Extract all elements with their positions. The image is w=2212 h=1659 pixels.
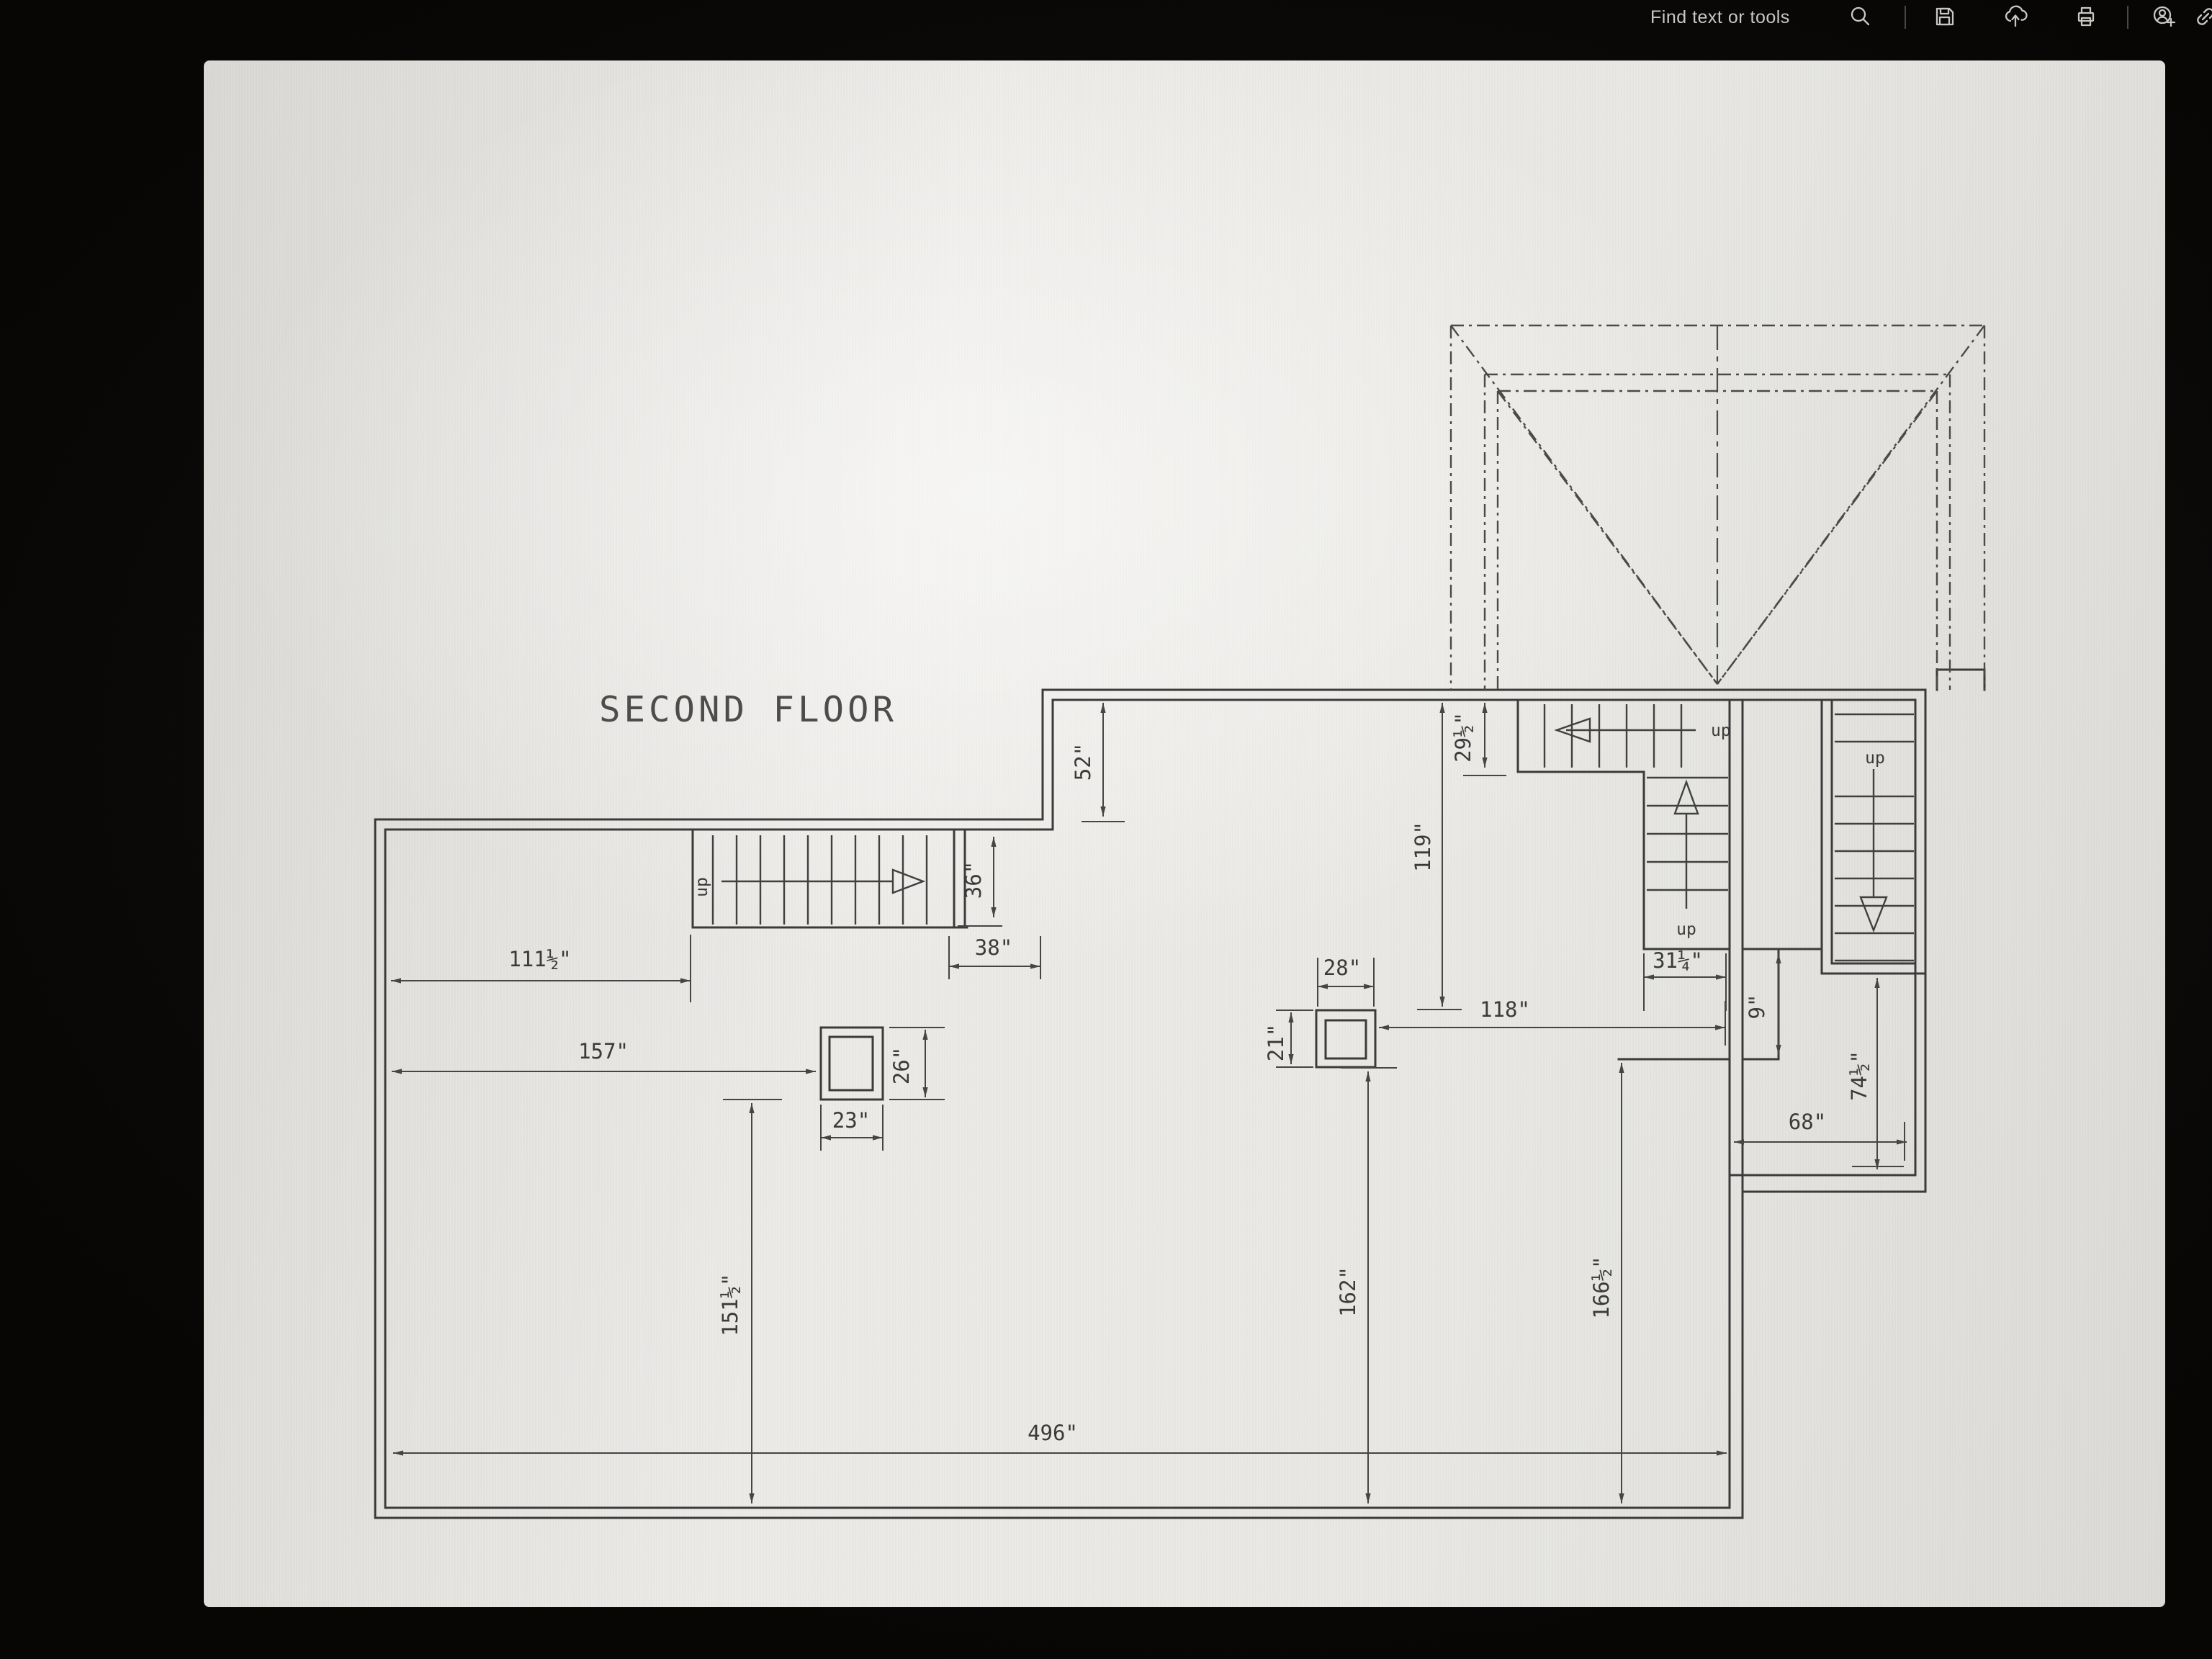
- dim-label-162: 162": [1336, 1267, 1360, 1317]
- staircase-left: up: [693, 835, 927, 925]
- roof-outline: [1451, 325, 1984, 690]
- screen: { "toolbar": { "find_label": "Find text …: [0, 0, 2212, 1659]
- dim-label-74: 74½": [1847, 1051, 1871, 1101]
- staircase-right: up: [1835, 714, 1914, 961]
- chimney-left: [821, 1028, 883, 1100]
- dim-label-26: 26": [889, 1047, 914, 1084]
- dim-label-118: 118": [1480, 997, 1530, 1022]
- dim-label-68: 68": [1789, 1110, 1826, 1134]
- dim-label-36: 36": [961, 861, 986, 899]
- stair-up-label: up: [1865, 749, 1885, 768]
- dim-label-119: 119": [1411, 822, 1435, 872]
- dim-label-28: 28": [1323, 956, 1361, 980]
- dim-label-21: 21": [1264, 1024, 1288, 1061]
- stair-up-label: up: [1711, 721, 1731, 740]
- dim-label-496: 496": [1028, 1421, 1078, 1445]
- staircase-middle-lower-run: up: [1647, 778, 1728, 939]
- dim-label-9: 9": [1745, 994, 1769, 1020]
- dim-label-31: 31¼": [1653, 948, 1703, 973]
- floor-plan-drawing: up up up up: [0, 0, 2212, 1659]
- dim-label-29: 29½": [1451, 712, 1475, 763]
- staircase-middle-upper-run: up: [1545, 704, 1731, 768]
- dim-label-166: 166½": [1589, 1256, 1614, 1318]
- stair-up-label: up: [693, 877, 711, 897]
- dimension-labels: 52" 36" 38" 111½" 157" 26" 23" 151½" 496…: [508, 712, 1871, 1445]
- dim-label-111: 111½": [508, 947, 571, 971]
- dimension-lines: [391, 703, 1907, 1503]
- dim-label-157: 157": [578, 1039, 629, 1064]
- chimney-right: [1316, 1010, 1375, 1067]
- dim-label-23: 23": [832, 1108, 870, 1133]
- stair-up-label: up: [1676, 920, 1696, 939]
- dim-label-52: 52": [1071, 743, 1095, 781]
- dim-label-151: 151½": [718, 1273, 742, 1336]
- dim-label-38: 38": [975, 935, 1012, 960]
- page-title: SECOND FLOOR: [599, 689, 897, 730]
